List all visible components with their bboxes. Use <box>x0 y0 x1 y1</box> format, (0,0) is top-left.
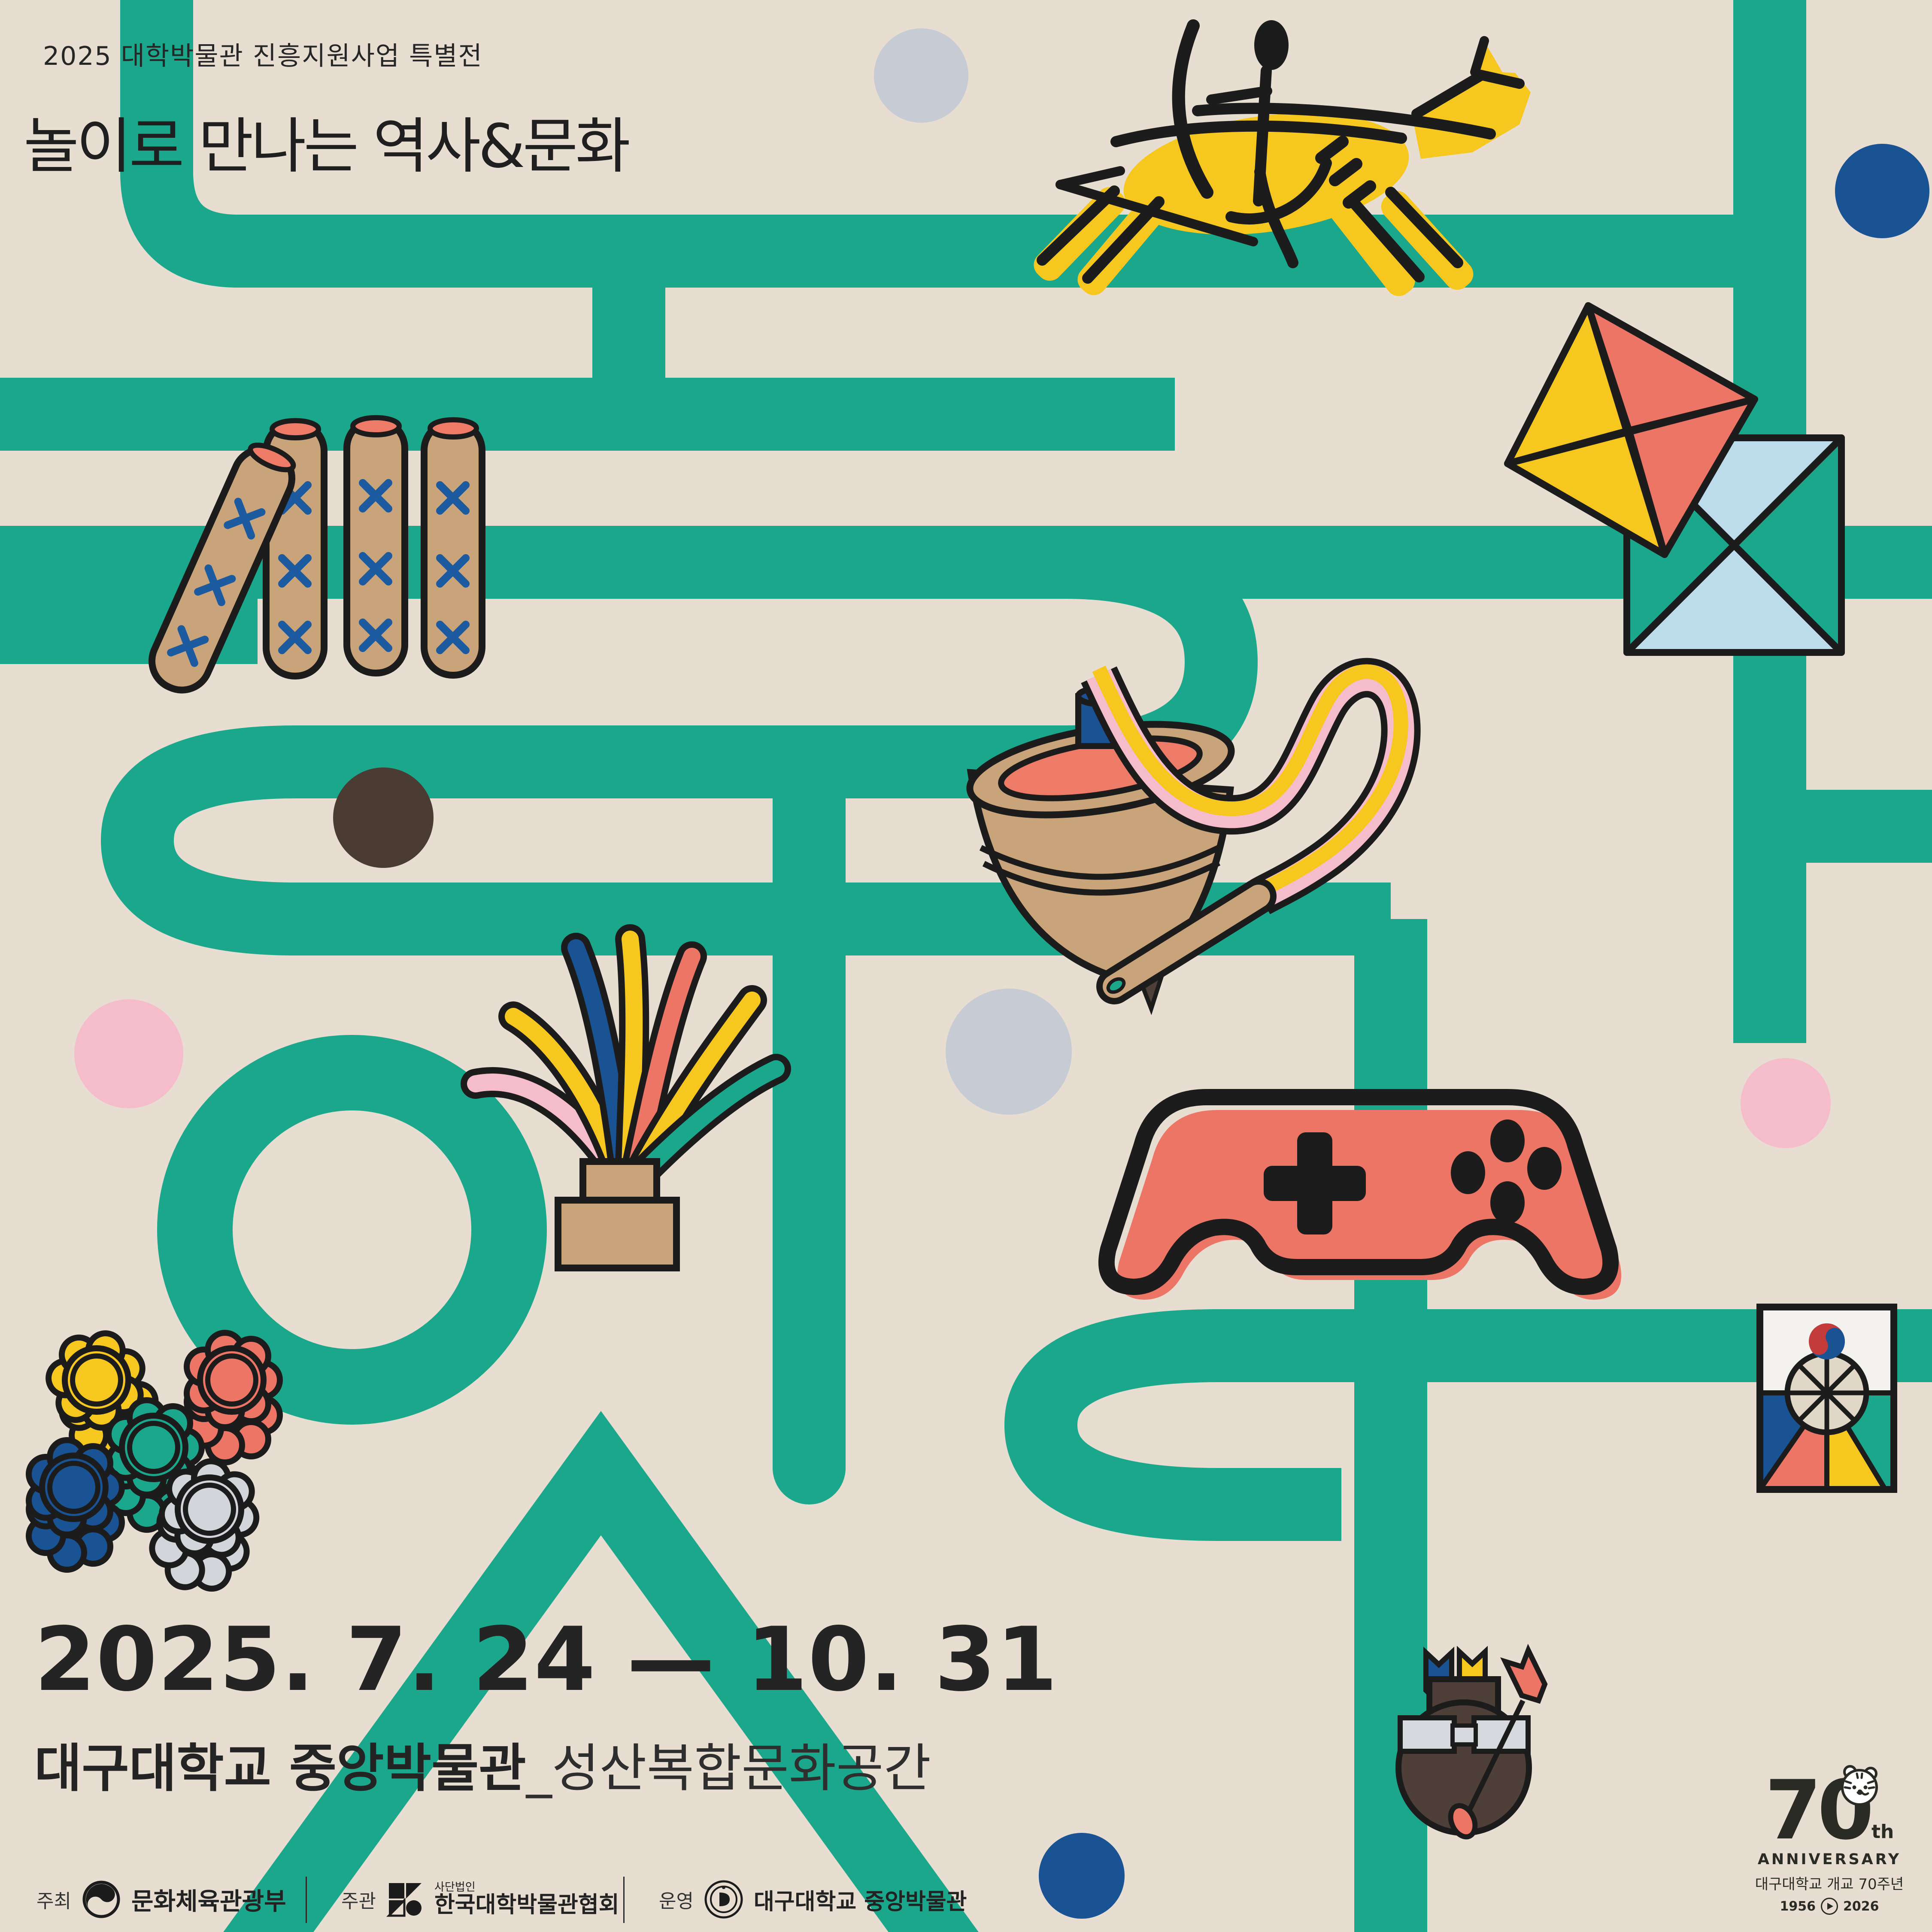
dot-gray-mid <box>946 989 1072 1115</box>
venue-name: 대구대학교 중앙박물관 <box>34 1739 526 1799</box>
organizer-label: 주관 <box>341 1886 376 1913</box>
organizer-org-type: 사단법인 <box>434 1882 619 1893</box>
flower-token-icons <box>29 1318 280 1601</box>
taegeuk-logo-icon <box>81 1879 122 1920</box>
exhibition-subtitle: 2025 대학박물관 진흥지원사업 특별전 <box>43 35 483 73</box>
gamepad-icon <box>1107 1097 1621 1300</box>
anniversary-year-from: 1956 <box>1780 1899 1816 1914</box>
exhibition-dates: 2025. 7. 24 — 10. 31 <box>34 1609 1058 1711</box>
anniversary-korean: 대구대학교 개교 70주년 <box>1748 1872 1911 1893</box>
poster-title: 놀이로 만나는 역사&문화 <box>24 98 628 185</box>
footer-divider <box>623 1877 625 1923</box>
venue-hall: _성산복합문화공간 <box>526 1739 931 1799</box>
dot-pink-right <box>1741 1058 1831 1148</box>
anniversary-logo: 70 th ANNIVERSARY 대구대학교 개교 70주년 1956 202… <box>1748 1768 1911 1915</box>
operator-group: 운영 대구대학교 중앙박물관 <box>659 1871 967 1927</box>
footer-divider <box>306 1877 307 1923</box>
host-org-name: 문화체육관광부 <box>131 1882 286 1917</box>
dot-gray-top <box>874 28 968 123</box>
taegeuk-fan-icon <box>1760 1307 1894 1489</box>
anniversary-suffix: th <box>1871 1819 1894 1845</box>
dot-brown <box>333 767 434 868</box>
venue-line: 대구대학교 중앙박물관_성산복합문화공간 <box>34 1726 931 1801</box>
university-seal-icon <box>703 1879 744 1920</box>
dot-navy-bottom <box>1039 1833 1125 1919</box>
yut-sticks-icon <box>143 418 482 699</box>
operator-org-name: 대구대학교 중앙박물관 <box>754 1883 967 1916</box>
organizer-org-name: 한국대학박물관협회 <box>434 1893 619 1917</box>
dot-navy-top <box>1835 144 1929 238</box>
host-label: 주최 <box>36 1886 71 1913</box>
dot-pink-left <box>74 999 183 1108</box>
exhibition-poster: 2025 대학박물관 진흥지원사업 특별전 놀이로 만나는 역사&문화 2025… <box>0 0 1932 1932</box>
tiger-icon <box>1837 1764 1882 1809</box>
organizer-group: 주관 사단법인 한국대학박물관협회 <box>341 1871 619 1927</box>
museum-association-logo-icon <box>385 1880 425 1919</box>
host-group: 주최 문화체육관광부 <box>36 1871 286 1927</box>
operator-label: 운영 <box>659 1886 694 1913</box>
anniversary-years: 1956 2026 <box>1748 1898 1911 1915</box>
anniversary-year-to: 2026 <box>1843 1899 1879 1914</box>
play-icon <box>1821 1898 1838 1915</box>
